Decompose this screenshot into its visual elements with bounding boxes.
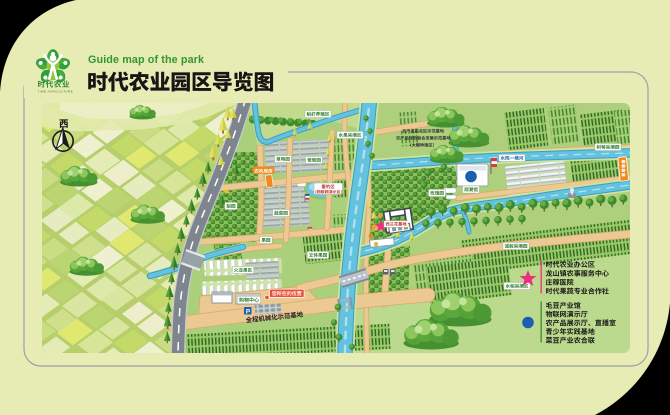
- svg-text:TIME AGRICULTURE: TIME AGRICULTURE: [38, 90, 74, 94]
- svg-text:P: P: [246, 308, 251, 315]
- svg-text:Guide map of the park: Guide map of the park: [88, 54, 205, 66]
